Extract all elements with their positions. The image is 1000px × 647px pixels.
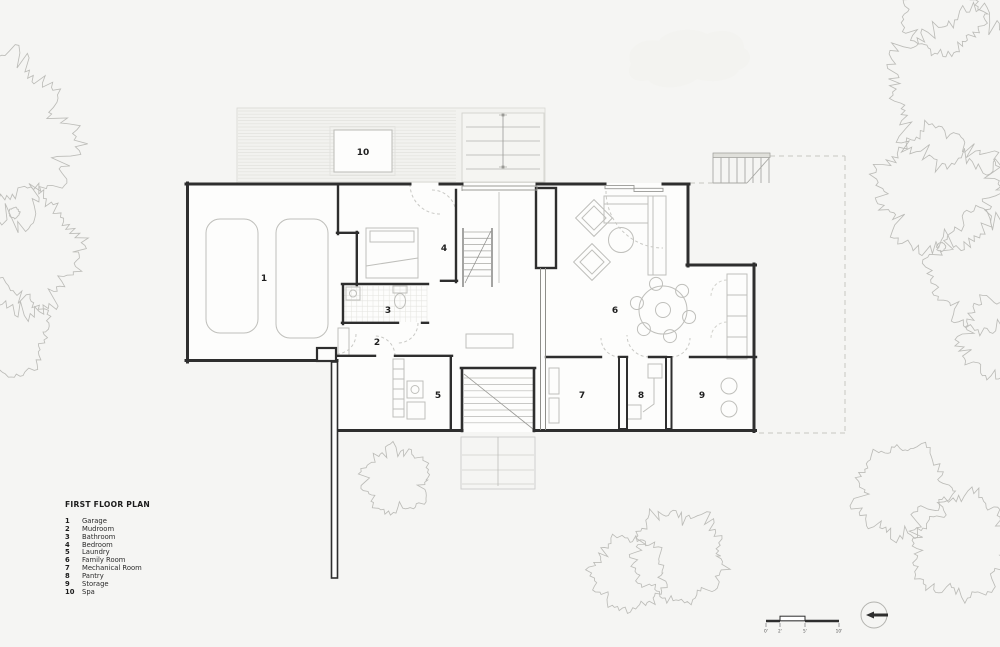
- legend-item-label: Spa: [82, 589, 95, 597]
- room-number-laundry: 5: [435, 391, 441, 401]
- slider-panel-1: [605, 186, 634, 189]
- tree-canopy: [586, 534, 668, 613]
- wall-8-9: [666, 357, 672, 429]
- scale-label-0: 0': [764, 629, 768, 635]
- scale-bar: 0' 2' 5' 10': [764, 616, 842, 634]
- tree-canopy: [358, 442, 429, 516]
- room-number-storage: 9: [699, 391, 705, 401]
- tree-canopy: [901, 0, 988, 57]
- spa-deck: [237, 108, 545, 183]
- tree-canopy: [922, 205, 1000, 335]
- tree-canopy: [869, 120, 1000, 255]
- north-arrow: [861, 602, 888, 628]
- line: [747, 157, 770, 183]
- tree-canopy: [0, 277, 51, 378]
- deck-steps: [462, 113, 544, 182]
- tree-canopy: [9, 207, 21, 219]
- tree-canopy: [955, 295, 1000, 383]
- floor-plan-drawing: 1 2 3 4 5 6 7 8 9 10 0' 2' 5' 10': [0, 0, 1000, 647]
- tree-canopy: [909, 487, 1000, 603]
- boulder-outline: [629, 30, 750, 88]
- legend-title: FIRST FLOOR PLAN: [65, 500, 150, 509]
- tree-canopy: [0, 183, 88, 321]
- room-number-mechanical: 7: [579, 391, 585, 401]
- room-number-garage: 1: [261, 274, 267, 284]
- site-wall: [332, 362, 338, 578]
- legend-item: 10Spa: [65, 589, 150, 597]
- legend-item: 7Mechanical Room: [65, 565, 150, 573]
- room-number-family-room: 6: [612, 306, 618, 316]
- room-number-spa: 10: [357, 148, 370, 158]
- legend-item: 9Storage: [65, 581, 150, 589]
- room-number-bathroom: 3: [385, 306, 391, 316]
- room-number-mudroom: 2: [374, 338, 380, 348]
- scale-label-2: 2': [778, 629, 782, 635]
- tree-canopy: [629, 509, 730, 605]
- tree-canopy: [850, 442, 956, 542]
- exterior-stair-top: [713, 153, 770, 158]
- basement-stair: [461, 437, 535, 489]
- tree-canopy: [0, 45, 88, 236]
- wall-7-8: [619, 357, 627, 429]
- exterior-stair: [713, 153, 770, 183]
- hall-wall-column: [536, 188, 556, 268]
- legend-item-num: 10: [65, 589, 82, 597]
- legend: FIRST FLOOR PLAN 1Garage 2Mudroom 3Bathr…: [65, 500, 150, 596]
- scale-label-5: 5': [803, 629, 807, 635]
- slider-panel-2: [634, 188, 663, 191]
- room-number-bedroom: 4: [441, 244, 447, 254]
- room-number-pantry: 8: [638, 391, 644, 401]
- floor-plan-page: 1 2 3 4 5 6 7 8 9 10 0' 2' 5' 10' FIRST …: [0, 0, 1000, 647]
- garage-door-pier: [317, 348, 336, 361]
- scale-label-10: 10': [836, 629, 843, 635]
